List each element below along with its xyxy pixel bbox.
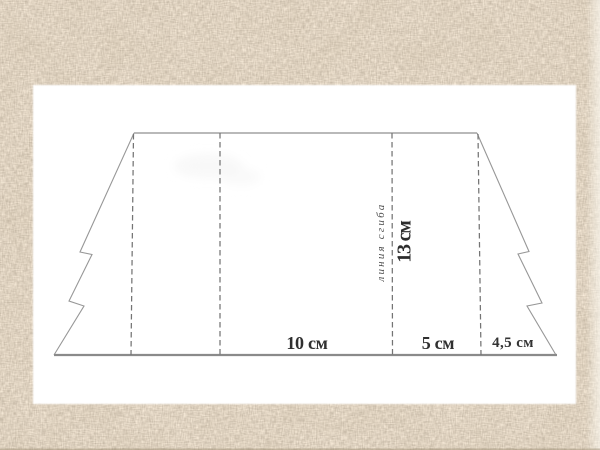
svg-text:5 см: 5 см [422, 333, 455, 353]
svg-text:линия сгиба: линия сгиба [375, 202, 387, 282]
svg-text:4,5 см: 4,5 см [492, 335, 534, 351]
svg-text:10 см: 10 см [286, 333, 327, 353]
svg-text:13 см: 13 см [394, 221, 416, 263]
